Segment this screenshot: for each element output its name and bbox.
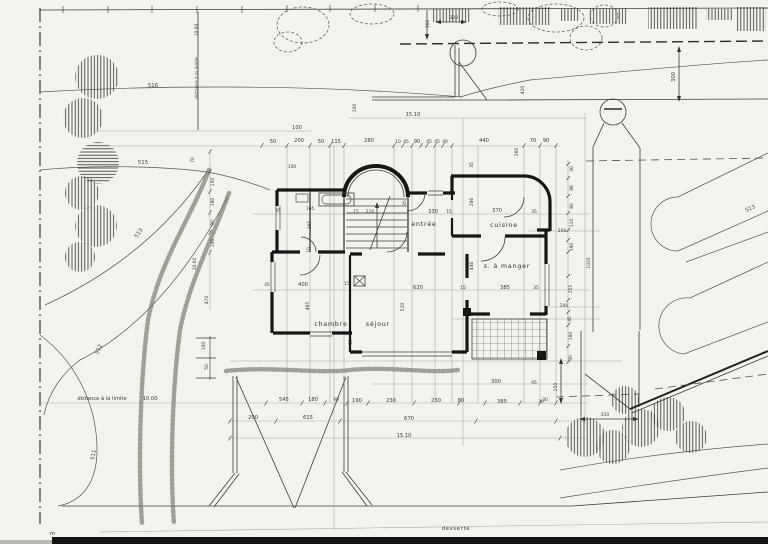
dim-label: 180 [210, 198, 216, 207]
dim-label: 70 [530, 138, 537, 144]
boundary-hedge-hatching [432, 7, 766, 31]
contour-label-516: 516 [148, 83, 159, 89]
dim-label: 80 [458, 398, 465, 404]
dim-label: 485 [305, 302, 311, 311]
labels: entrée cuisine s. à manger chambre séjou… [50, 15, 757, 537]
east-dashed-line [586, 158, 768, 161]
dim-label: 45 [426, 139, 432, 145]
south-retaining-wall-inner [632, 356, 768, 413]
dim-label: 35 [348, 339, 354, 345]
dim-label: 30 [569, 166, 575, 172]
dim-label: 90 [543, 138, 550, 144]
dim-label: 15 [353, 209, 359, 215]
gate-post-circle-2 [600, 99, 626, 125]
door-arc-hall [387, 232, 407, 252]
south-dashed-line [556, 374, 768, 397]
dim-label: 385 [497, 399, 507, 405]
dim-label: 300 [491, 379, 501, 385]
contour-label-512: 512 [94, 344, 104, 356]
dim-label: 210 [366, 209, 375, 215]
desserte-road-edge-east [572, 492, 768, 506]
dim-label: 45 [434, 139, 440, 145]
dim-label: 50 [318, 139, 325, 145]
vegetation [63, 2, 766, 524]
dim-label: 45 [567, 316, 573, 322]
pillar [463, 308, 471, 316]
tree [675, 421, 707, 453]
dim-label: 15.10 [397, 433, 412, 439]
contour-512 [44, 196, 228, 415]
dim-label: 90 [210, 220, 216, 226]
garage-ramp [209, 376, 372, 508]
distance-limit-bottom-label: distance à la limite [77, 395, 126, 402]
stair-bay-arch [344, 166, 408, 197]
room-label-entree: entrée [411, 220, 436, 228]
dim-label: 45 [264, 282, 270, 288]
hedge-row-south [226, 369, 458, 371]
room-label-sejour: séjour [366, 320, 390, 328]
dim-label: 670 [404, 416, 414, 422]
road-edge-wall [372, 97, 768, 100]
dim-label: 320 [450, 15, 459, 21]
dim-label: 260 [514, 148, 520, 157]
dim-label: 10 [306, 247, 312, 253]
dim-label: 286 [469, 198, 475, 207]
dim-label: 100 [210, 239, 216, 248]
dim-label: 100 [292, 125, 302, 131]
dim-label: 200 [294, 138, 304, 144]
dim-label: 10.00 [192, 258, 198, 271]
scan-edge-bar [52, 537, 768, 544]
fireplace [354, 276, 365, 286]
wall-cuisine-round-corner [524, 176, 550, 202]
dim-label: 45 [403, 139, 409, 145]
dimension-lines [209, 10, 682, 441]
tree [75, 55, 119, 99]
tree-cluster-west [63, 55, 119, 272]
hedge-row-west-1 [140, 170, 209, 523]
terrace-tiled [472, 319, 547, 359]
dim-label: 520 [400, 303, 406, 312]
dim-label: 470 [204, 296, 210, 305]
dim-label: 400 [298, 282, 308, 288]
driveway-loop-lower [659, 262, 768, 354]
terrace-pillar [537, 351, 546, 360]
dim-label: 90 [333, 397, 339, 403]
distance-limit-left-value: 10.00 [194, 24, 200, 37]
dim-label: 360 [425, 20, 431, 29]
east-driveway-edges [593, 123, 640, 332]
dim-label: 420 [520, 86, 526, 95]
dim-label: 98 [569, 185, 575, 191]
contour-label-513-right: 513 [745, 204, 757, 214]
desserte-road-lower [100, 522, 768, 532]
road-contour-upper [460, 60, 768, 97]
door-arc-manger [481, 237, 505, 261]
dim-label: 100 [210, 178, 216, 187]
dim-label: 265 [307, 221, 313, 230]
south-retaining-wall [630, 351, 768, 409]
tree [65, 242, 95, 272]
dim-label: 180 [308, 397, 318, 403]
dim-label: 30 [568, 355, 574, 361]
tree [75, 205, 117, 247]
dim-label: 95 [275, 208, 281, 214]
driveway-diagonal-mid [686, 232, 768, 262]
contour-511 [40, 335, 97, 506]
dim-label: 190 [352, 398, 362, 404]
wall-cuisine-north [451, 176, 524, 193]
dim-label: 100 [352, 104, 358, 113]
hedge-row-west-2 [172, 193, 229, 524]
dim-label: 620 [413, 285, 423, 291]
plan-drawing: entrée cuisine s. à manger chambre séjou… [0, 0, 768, 544]
scanned-plan-page: entrée cuisine s. à manger chambre séjou… [0, 0, 768, 544]
dim-label: 35 [469, 162, 475, 168]
dim-label: 50 [270, 139, 277, 145]
dim-label: 100 [201, 342, 207, 351]
dim-label: 35 [402, 200, 408, 206]
distance-limit-left-label: distance à la limite [193, 57, 200, 99]
dim-label: 70 [190, 157, 196, 163]
dim-label: 615 [303, 415, 313, 421]
dim-label: 280 [364, 138, 374, 144]
dim-label: 40 [442, 139, 448, 145]
gate-post-circle-1 [450, 40, 476, 66]
dim-label: 90 [414, 139, 421, 145]
wall-manger-east-south [468, 230, 546, 315]
dim-label: 100 [288, 164, 297, 170]
dim-label: 230 [431, 398, 441, 404]
dim-label: 440 [479, 138, 489, 144]
dim-label: 200 [560, 303, 569, 309]
driveway-loop-upper [651, 153, 768, 251]
room-label-cuisine: cuisine [490, 222, 518, 229]
dim-label: 80 [569, 203, 575, 209]
bathtub-inner [322, 195, 351, 204]
scan-edge-corner [0, 540, 52, 544]
dim-label: 330 [428, 209, 438, 215]
dim-label: 15.10 [406, 112, 421, 118]
room-label-chambre: chambre [314, 321, 347, 328]
dim-label: 310 [601, 412, 610, 418]
dim-label: 180 [568, 332, 574, 341]
contour-label-513-left: 513 [134, 227, 145, 239]
construction-grid [40, 12, 622, 530]
dim-label: 95 [531, 380, 537, 386]
dim-label: 15 [344, 281, 350, 287]
dim-label: 10 [395, 139, 401, 145]
dim-label: 115 [331, 139, 341, 145]
dim-label: 255 [568, 285, 574, 294]
room-label-salle-a-manger: s. à manger [484, 262, 530, 270]
wall-cuisine-east [537, 202, 550, 231]
dim-label: 35 [533, 285, 539, 291]
tree [611, 386, 639, 414]
washbasin [296, 194, 308, 202]
tree-cluster-southeast [565, 386, 707, 464]
dim-label: 15 [446, 209, 452, 215]
dim-label: 300 [671, 72, 677, 82]
dim-label: 30 [538, 399, 544, 405]
staircase [346, 196, 407, 250]
dim-label: 200 [558, 228, 567, 234]
dim-label: 545 [279, 397, 289, 403]
dim-label: 35 [531, 209, 537, 215]
dim-label: 190 [569, 243, 575, 252]
dim-label: 448 [469, 262, 475, 271]
dim-label: 15 [460, 285, 466, 291]
distance-limit-bottom-value: 10.00 [143, 396, 158, 402]
dim-label: 110 [569, 219, 575, 228]
wall-mid-corridor [277, 252, 445, 254]
dim-label: 200 [248, 415, 258, 421]
desserte-label: desserte [442, 526, 471, 532]
dim-label: 1020 [586, 257, 592, 268]
dim-label: 230 [386, 398, 396, 404]
dim-label: 50 [204, 364, 210, 370]
dim-label: 385 [500, 285, 510, 291]
dim-label: 165 [306, 206, 315, 212]
dim-label: 250 [553, 383, 559, 392]
tree [63, 98, 103, 138]
scale-unit-label: m [50, 531, 56, 537]
contour-label-515: 515 [138, 160, 148, 166]
tree [65, 176, 99, 210]
dim-label: 370 [492, 208, 502, 214]
gate-wall [455, 45, 487, 100]
